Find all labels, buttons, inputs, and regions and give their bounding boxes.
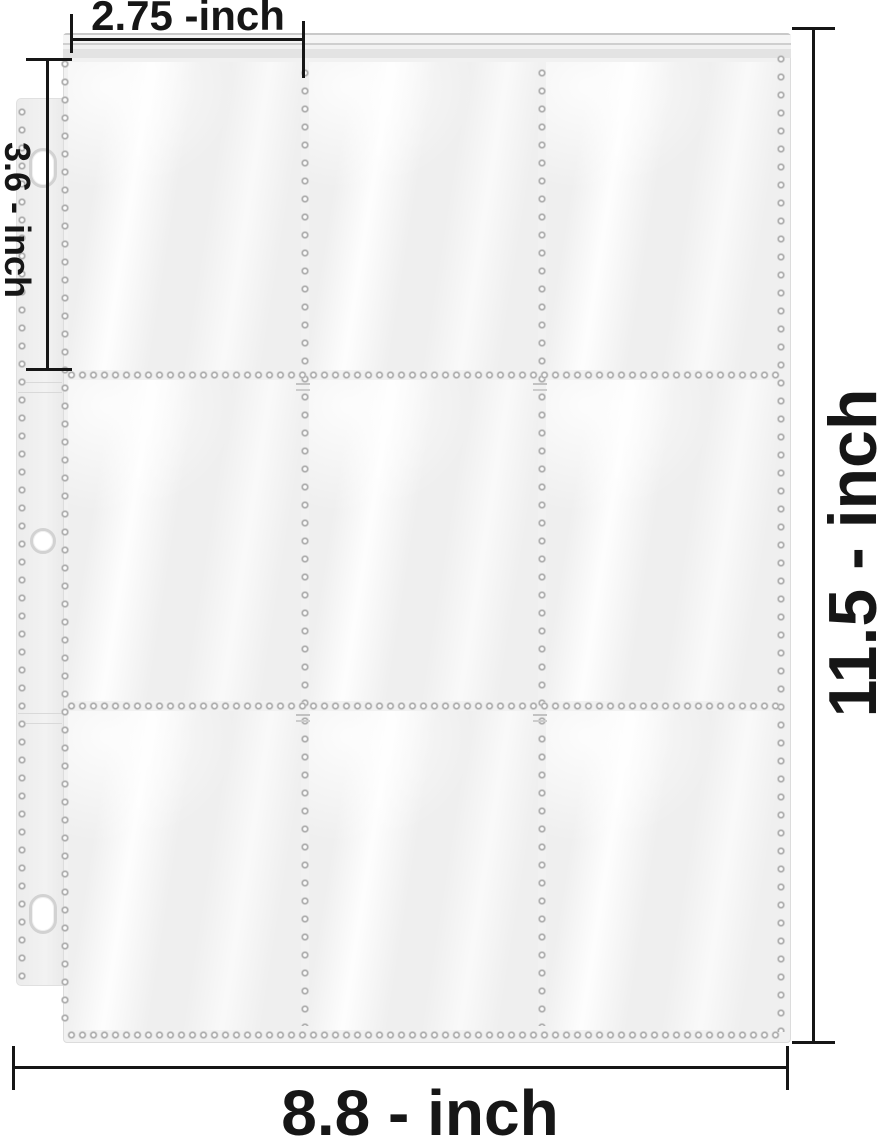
perforation-vertical-seam-1: [300, 64, 310, 1026]
binder-hole-bottom: [29, 894, 57, 934]
pocket-r1c1: [68, 62, 301, 370]
dim-tick: [12, 1046, 15, 1090]
dim-tick: [786, 1046, 789, 1090]
perforation-page-left-edge: [60, 55, 70, 1030]
pocket-r2c3: [546, 380, 780, 701]
perforation-horizontal-seam-2: [66, 701, 781, 711]
pocket-notch: [296, 714, 310, 716]
dim-tick: [26, 58, 72, 61]
pocket-r2c2: [309, 380, 538, 701]
binder-hole-middle: [30, 528, 56, 554]
pocket-notch: [533, 383, 547, 385]
pocket-r1c3: [546, 62, 780, 370]
pocket-notch: [533, 714, 547, 716]
perforation-bottom-edge: [66, 1030, 781, 1040]
perforation-page-right-edge: [776, 50, 786, 1032]
pocket-r3c2: [309, 711, 538, 1030]
dim-line-hole-edge: [46, 59, 49, 371]
dim-tick: [792, 27, 835, 30]
pocket-width-label: 2.75 -inch: [72, 0, 304, 38]
pocket-notch: [296, 383, 310, 385]
pocket-r3c3: [546, 711, 780, 1030]
page-height-label: 11.5 - inch: [818, 353, 881, 753]
pocket-r1c2: [309, 62, 538, 370]
pocket-r2c1: [68, 380, 301, 701]
product-dimension-diagram: 2.75 -inch 3.6 - inch 11.5 - inch 8.8 - …: [0, 0, 881, 1139]
page-width-label: 8.8 - inch: [140, 1080, 700, 1139]
dim-line-page-width: [14, 1066, 788, 1069]
perforation-vertical-seam-2: [537, 64, 547, 1026]
dim-tick: [26, 368, 72, 371]
dim-tick: [792, 1041, 835, 1044]
hole-edge-label: 3.6 - inch: [0, 135, 36, 305]
pocket-r3c1: [68, 711, 301, 1030]
perforation-horizontal-seam-1: [66, 370, 781, 380]
